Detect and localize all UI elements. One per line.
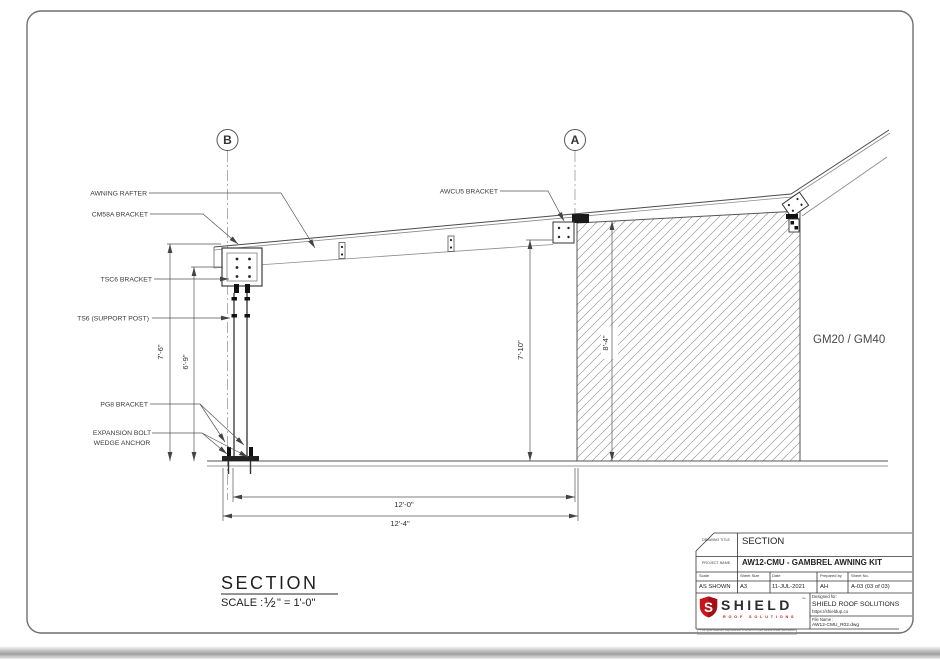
label-ts6-support-post: TS6 (SUPPORT POST) <box>77 316 149 323</box>
dimension-7-10: 7'-10" <box>516 240 553 461</box>
label-awcu5-bracket: AWCU5 BRACKET <box>440 189 498 196</box>
shield-logo-icon: S <box>699 596 718 618</box>
label-awning-rafter: AWNING RAFTER <box>90 191 147 198</box>
support-post-assembly <box>222 248 262 474</box>
project-name-value: AW12-CMU - GAMBREL AWNING KIT <box>742 559 882 568</box>
dim-text-8-4: 8'-4" <box>601 335 610 350</box>
dim-text-6-9: 6'-9" <box>181 354 190 369</box>
leader-lines <box>149 191 564 457</box>
file-name-value: AW12-CMU_R02.dwg <box>812 623 859 628</box>
dimension-7-6: 7'-6" <box>156 244 221 461</box>
designed-for-value: SHIELD ROOF SOLUTIONS <box>812 601 899 608</box>
field-value-sheet-no: A-03 (03 of 03) <box>851 584 890 590</box>
marker-b-label: B <box>223 133 232 147</box>
section-marker-a: A <box>565 130 586 151</box>
dimension-6-9: 6'-9" <box>181 267 223 461</box>
field-value-date: 11-JUL-2021 <box>772 584 805 590</box>
label-expansion-bolt: EXPANSION BOLT <box>93 430 151 437</box>
copyright-line: © All rights reserved. Reproduction in w… <box>700 630 796 633</box>
label-wedge-anchor: WEDGE ANCHOR <box>94 440 151 447</box>
scanned-drawing-page: B A <box>0 0 940 661</box>
dim-text-7-10: 7'-10" <box>516 340 525 360</box>
dim-text-12-4: 12'-4" <box>390 519 410 528</box>
shield-logo-tm: ™ <box>802 598 806 602</box>
dim-text-7-6: 7'-6" <box>156 344 165 359</box>
field-label-sheet-size: Sheet Size <box>740 574 759 578</box>
designed-for-label: Designed for: <box>812 595 837 600</box>
dimension-12-4: 12'-4" <box>223 468 578 528</box>
field-value-prepared-by: AH <box>820 584 828 590</box>
view-scale-fraction: ½ <box>264 594 276 610</box>
scan-shadow-band <box>0 646 940 659</box>
drawing-title-value: SECTION <box>742 537 784 547</box>
shield-logo: S SHIELD ™ ROOF SOLUTIONS <box>699 595 809 628</box>
ground-line <box>207 461 888 466</box>
field-label-sheet-no: Sheet No. <box>851 574 869 578</box>
file-name-label: File Name : <box>812 618 833 623</box>
view-title: SECTION SCALE : ½ " = 1'-0" <box>221 573 338 610</box>
section-marker-b: B <box>217 130 238 151</box>
view-scale-suffix: " = 1'-0" <box>277 597 315 609</box>
field-label-date: Date <box>772 574 780 578</box>
shield-logo-wordmark: SHIELD <box>721 598 793 613</box>
drawing-title-label: DRAWING TITLE <box>702 539 730 543</box>
shield-logo-tagline: ROOF SOLUTIONS <box>723 615 796 619</box>
field-label-prepared-by: Prepared by <box>820 574 842 578</box>
field-value-sheet-size: A3 <box>740 584 747 590</box>
view-title-text: SECTION <box>221 573 319 593</box>
view-scale-prefix: SCALE : <box>221 597 263 609</box>
field-label-scale: Scale <box>699 574 709 578</box>
dim-text-12-0: 12'-0" <box>394 500 414 509</box>
grid-centerlines <box>228 151 576 500</box>
marker-a-label: A <box>571 133 580 147</box>
shield-logo-letter: S <box>704 600 713 615</box>
label-gm20-gm40: GM20 / GM40 <box>813 334 885 346</box>
dimension-12-0: 12'-0" <box>233 468 575 509</box>
designed-for-url: https://shieldup.co <box>812 610 848 615</box>
label-cm58a-bracket: CM58A BRACKET <box>92 212 148 219</box>
field-value-scale: AS SHOWN <box>699 584 731 590</box>
project-name-label: PROJECT NAME <box>702 562 730 566</box>
label-pg8-bracket: PG8 BRACKET <box>100 402 148 409</box>
label-tsc6-bracket: TSC6 BRACKET <box>101 277 152 284</box>
